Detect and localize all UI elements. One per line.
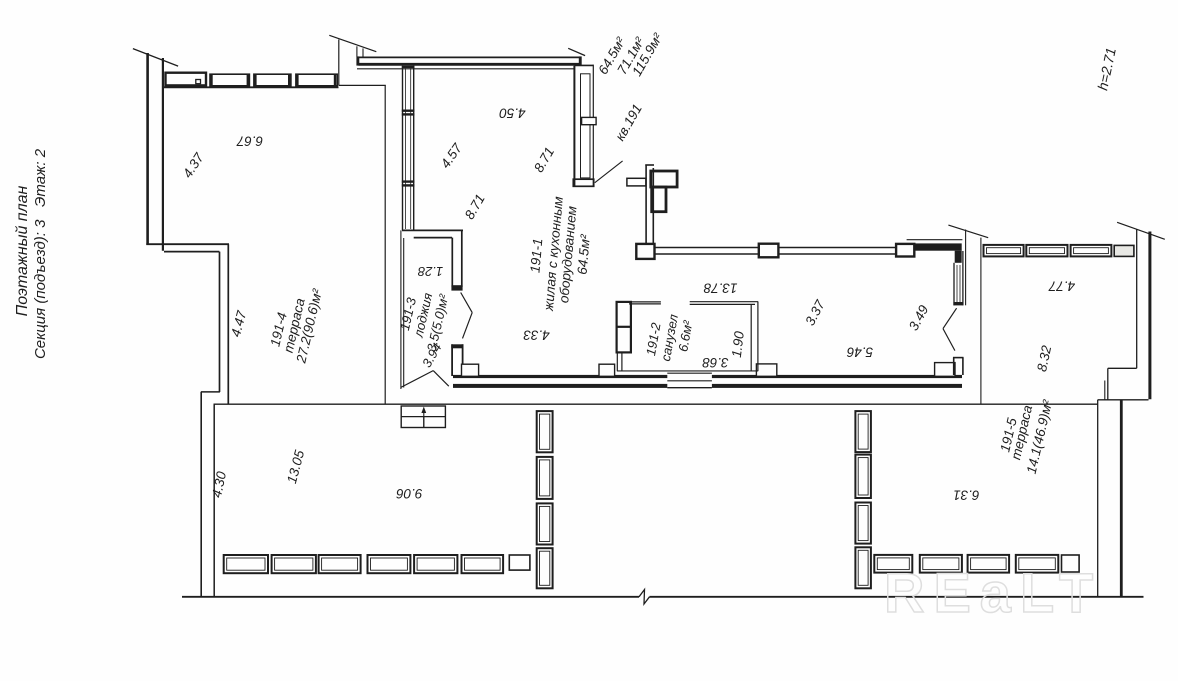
- svg-text:1.90: 1.90: [729, 330, 747, 358]
- svg-text:3.37: 3.37: [802, 297, 828, 328]
- svg-text:4.57: 4.57: [438, 140, 466, 171]
- svg-text:Поэтажный план: Поэтажный план: [14, 185, 31, 316]
- svg-text:4.30: 4.30: [209, 470, 229, 499]
- svg-text:9.06: 9.06: [396, 486, 423, 501]
- svg-text:4.37: 4.37: [180, 150, 207, 181]
- svg-text:кв.191: кв.191: [612, 102, 645, 144]
- svg-text:4.50: 4.50: [499, 106, 526, 121]
- svg-text:5.46: 5.46: [846, 345, 873, 360]
- svg-text:191-1: 191-1: [527, 238, 545, 274]
- svg-text:6.67: 6.67: [236, 134, 263, 149]
- svg-text:13.78: 13.78: [703, 281, 737, 296]
- svg-text:3.94: 3.94: [419, 341, 445, 370]
- svg-text:1.28: 1.28: [417, 264, 443, 279]
- svg-text:4.33: 4.33: [523, 328, 550, 343]
- svg-text:Секция (подъезд): 3 Этаж: 2: Секция (подъезд): 3 Этаж: 2: [32, 148, 49, 359]
- svg-text:3.49: 3.49: [906, 302, 932, 333]
- svg-text:6.31: 6.31: [953, 488, 979, 503]
- svg-text:h=2.71: h=2.71: [1094, 46, 1119, 92]
- svg-text:8.32: 8.32: [1034, 344, 1054, 373]
- svg-text:4.77: 4.77: [1048, 279, 1075, 294]
- svg-text:13.05: 13.05: [284, 448, 307, 485]
- svg-text:4.47: 4.47: [228, 309, 249, 339]
- svg-text:REaLT: REaLT: [884, 561, 1102, 624]
- svg-text:64.5м²: 64.5м²: [575, 234, 593, 276]
- svg-text:8.71: 8.71: [462, 192, 488, 222]
- svg-text:8.71: 8.71: [531, 145, 557, 175]
- svg-text:3.68: 3.68: [702, 355, 729, 370]
